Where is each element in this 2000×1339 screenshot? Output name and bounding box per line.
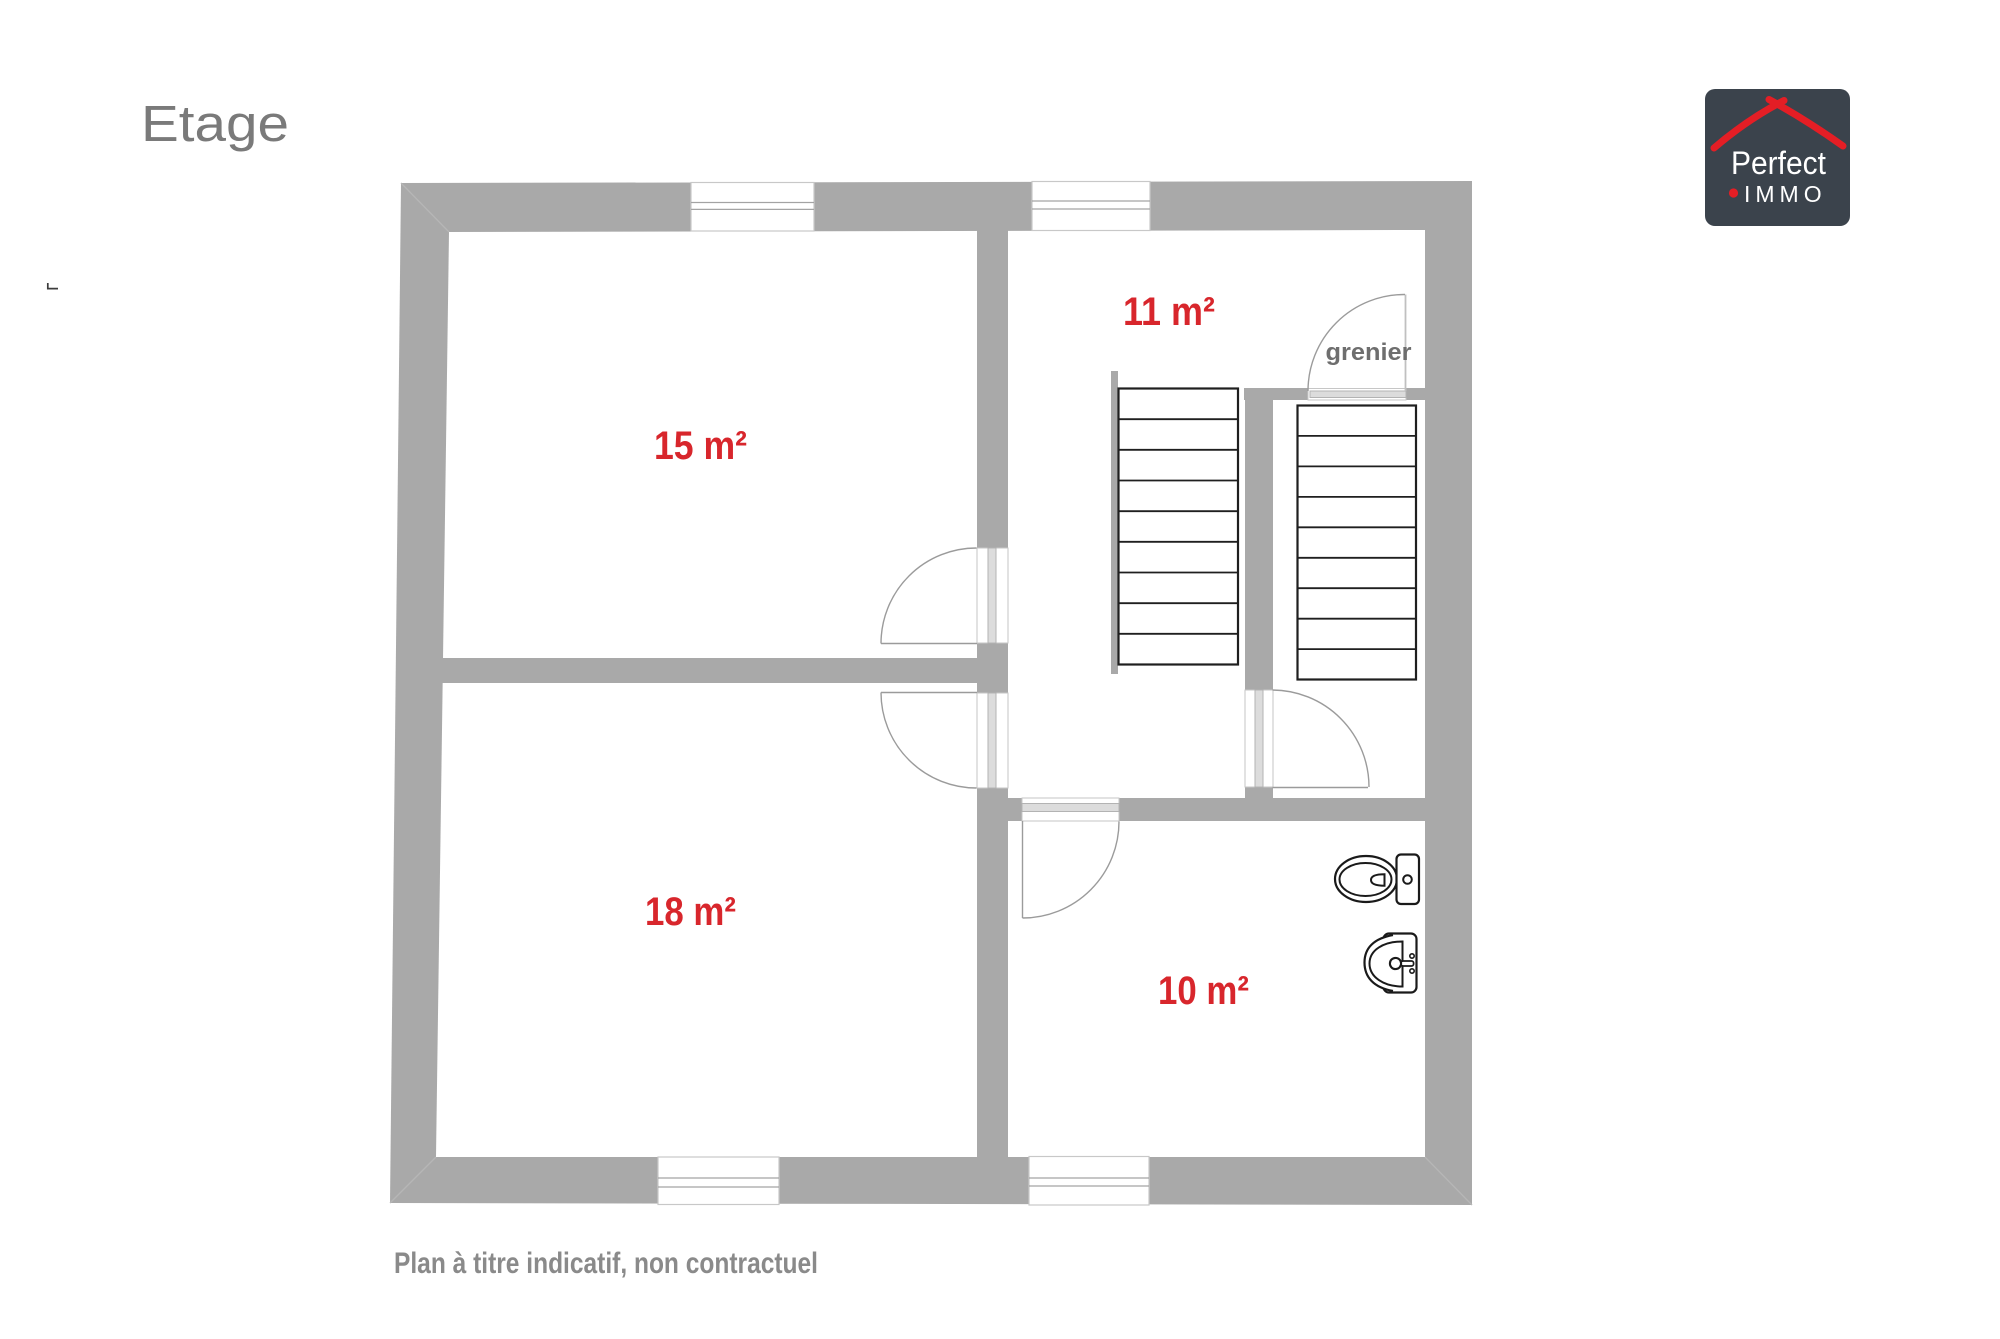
svg-text:Plan à titre indicatif, non co: Plan à titre indicatif, non contractuel — [394, 1247, 818, 1280]
svg-text:IMMO: IMMO — [1744, 181, 1827, 207]
svg-text:grenier: grenier — [1326, 339, 1412, 366]
svg-text:10 m²: 10 m² — [1158, 969, 1249, 1013]
svg-text:15 m²: 15 m² — [654, 424, 747, 468]
svg-text:Perfect: Perfect — [1731, 145, 1826, 181]
svg-text:Etage: Etage — [141, 95, 289, 152]
svg-text:18 m²: 18 m² — [645, 890, 736, 934]
svg-text:11 m²: 11 m² — [1123, 290, 1215, 334]
